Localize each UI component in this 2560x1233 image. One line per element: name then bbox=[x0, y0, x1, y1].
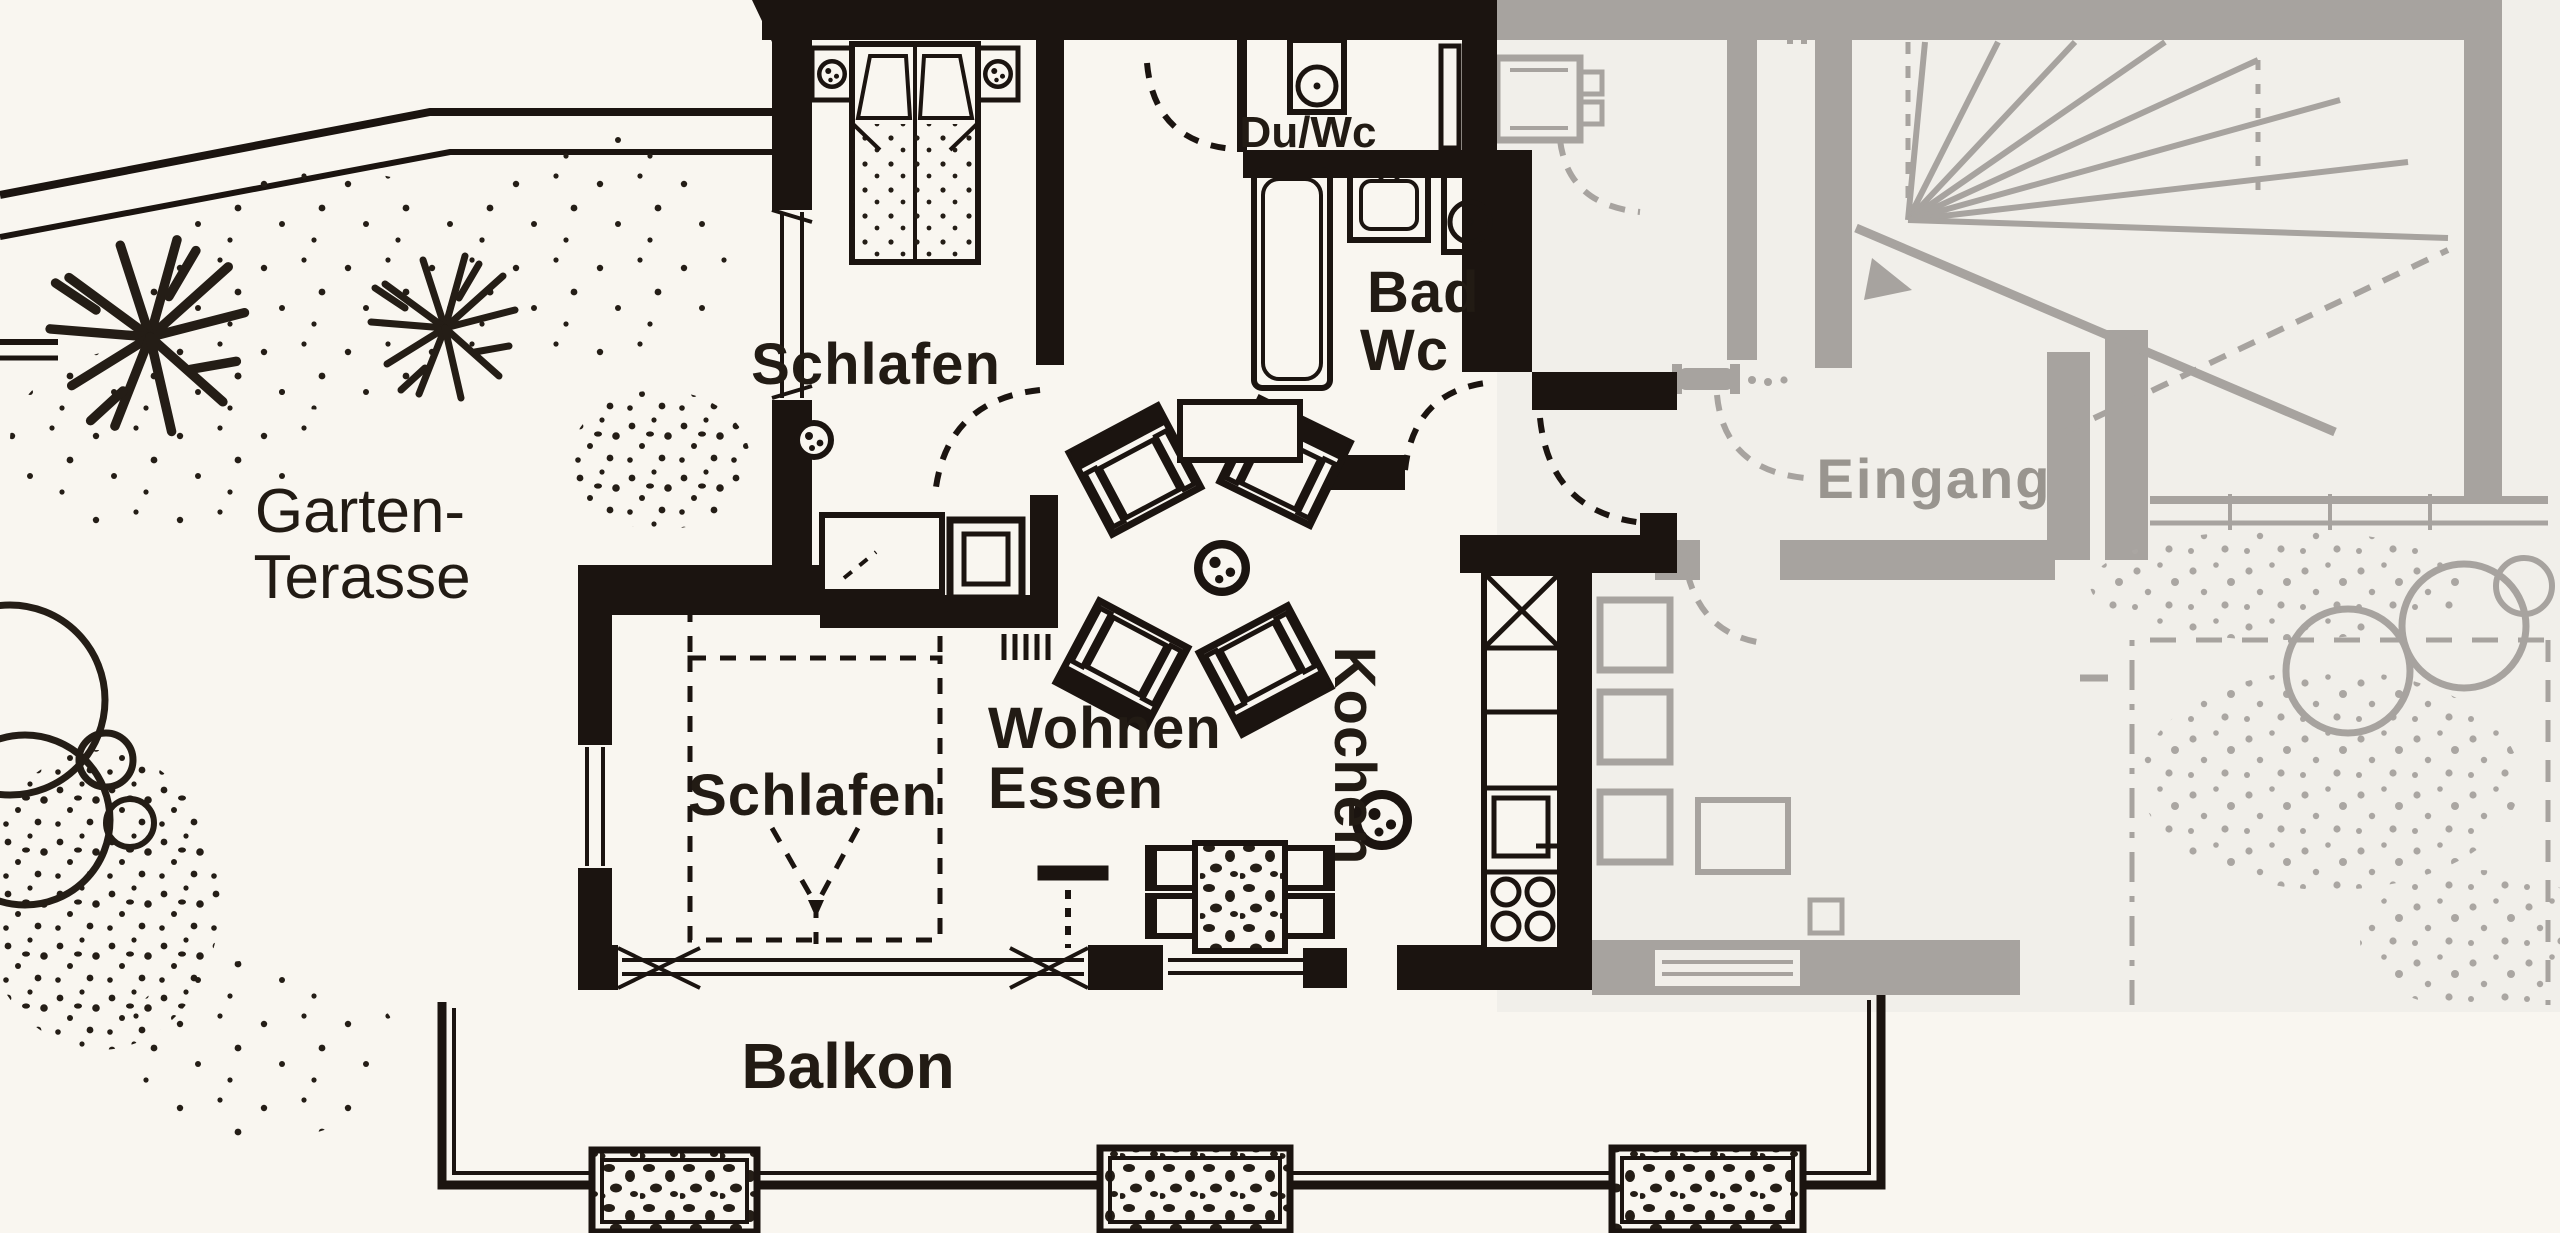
label-bad-line1: Bad bbox=[1367, 260, 1480, 325]
label-balkon: Balkon bbox=[741, 1030, 954, 1102]
flower-box bbox=[592, 1150, 757, 1232]
plant-symbol bbox=[1198, 544, 1246, 592]
pass-through-niche bbox=[1180, 402, 1300, 460]
label-garten-line1: Garten- bbox=[255, 477, 465, 546]
flower-box bbox=[1100, 1148, 1290, 1232]
label-garten-line2: Terasse bbox=[253, 543, 470, 612]
label-wohnen-line1: Wohnen bbox=[988, 696, 1222, 761]
label-schlafen-bottom: Schlafen bbox=[688, 763, 938, 828]
label-du-wc: Du/Wc bbox=[1240, 108, 1377, 157]
window-band-bottom bbox=[618, 948, 1088, 988]
floor-plan-svg: Garten- Terasse bbox=[0, 0, 2560, 1233]
label-schlafen-top: Schlafen bbox=[751, 332, 1001, 397]
floorplan-page: Garten- Terasse bbox=[0, 0, 2560, 1233]
kitchen-counter bbox=[1484, 573, 1560, 950]
label-bad-line2: Wc bbox=[1360, 318, 1449, 383]
entry-door-opening bbox=[1532, 410, 1560, 513]
label-eingang: Eingang bbox=[1817, 447, 2052, 510]
plant-symbol bbox=[797, 423, 831, 457]
flower-box bbox=[1612, 1148, 1803, 1232]
dining-set bbox=[1148, 843, 1332, 951]
window-lower-bedroom-left bbox=[578, 745, 612, 868]
shower-partition bbox=[1441, 46, 1459, 148]
label-wohnen-line2: Essen bbox=[988, 756, 1164, 821]
label-kochen: Kochen bbox=[1322, 647, 1387, 866]
neighbor-bottom-wall bbox=[1592, 940, 2020, 995]
sideboard bbox=[822, 515, 942, 592]
